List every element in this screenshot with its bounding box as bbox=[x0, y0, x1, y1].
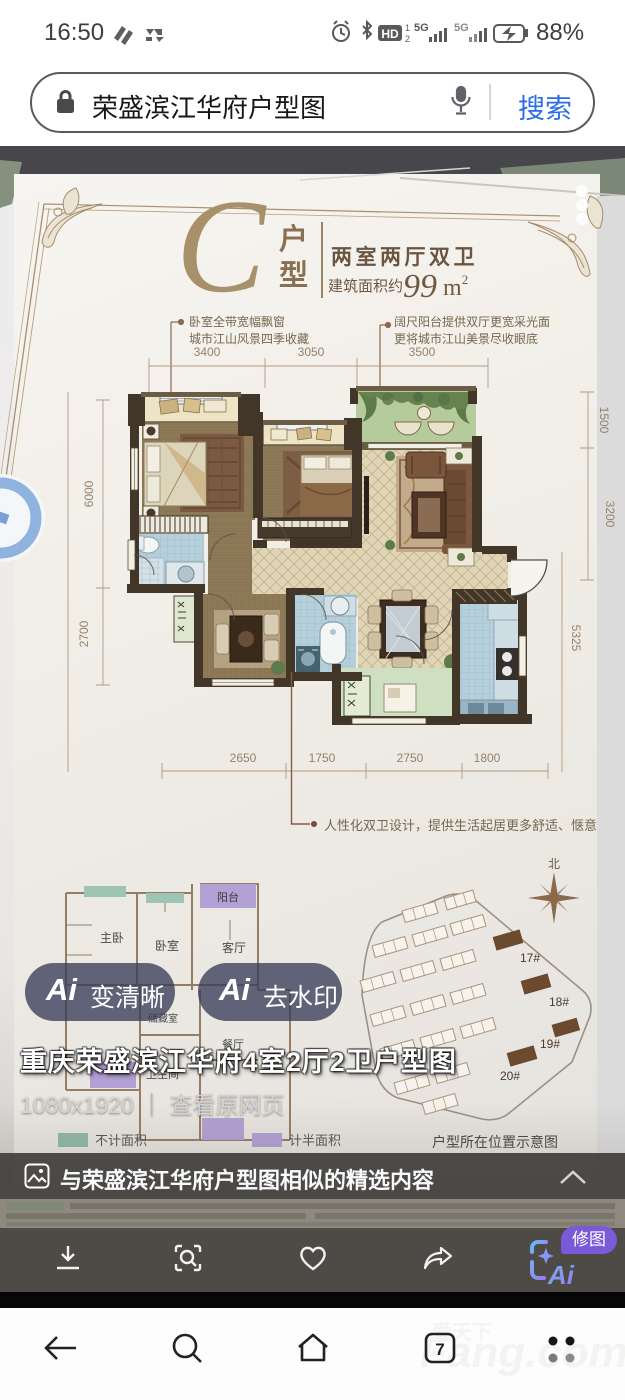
svg-text:Ai: Ai bbox=[547, 1260, 575, 1290]
svg-text:19#: 19# bbox=[540, 1037, 560, 1051]
svg-text:20#: 20# bbox=[500, 1069, 520, 1083]
svg-text:17#: 17# bbox=[520, 951, 540, 965]
svg-text:18#: 18# bbox=[549, 995, 569, 1009]
svg-text:北: 北 bbox=[548, 857, 560, 871]
svg-text:7: 7 bbox=[435, 1340, 444, 1359]
